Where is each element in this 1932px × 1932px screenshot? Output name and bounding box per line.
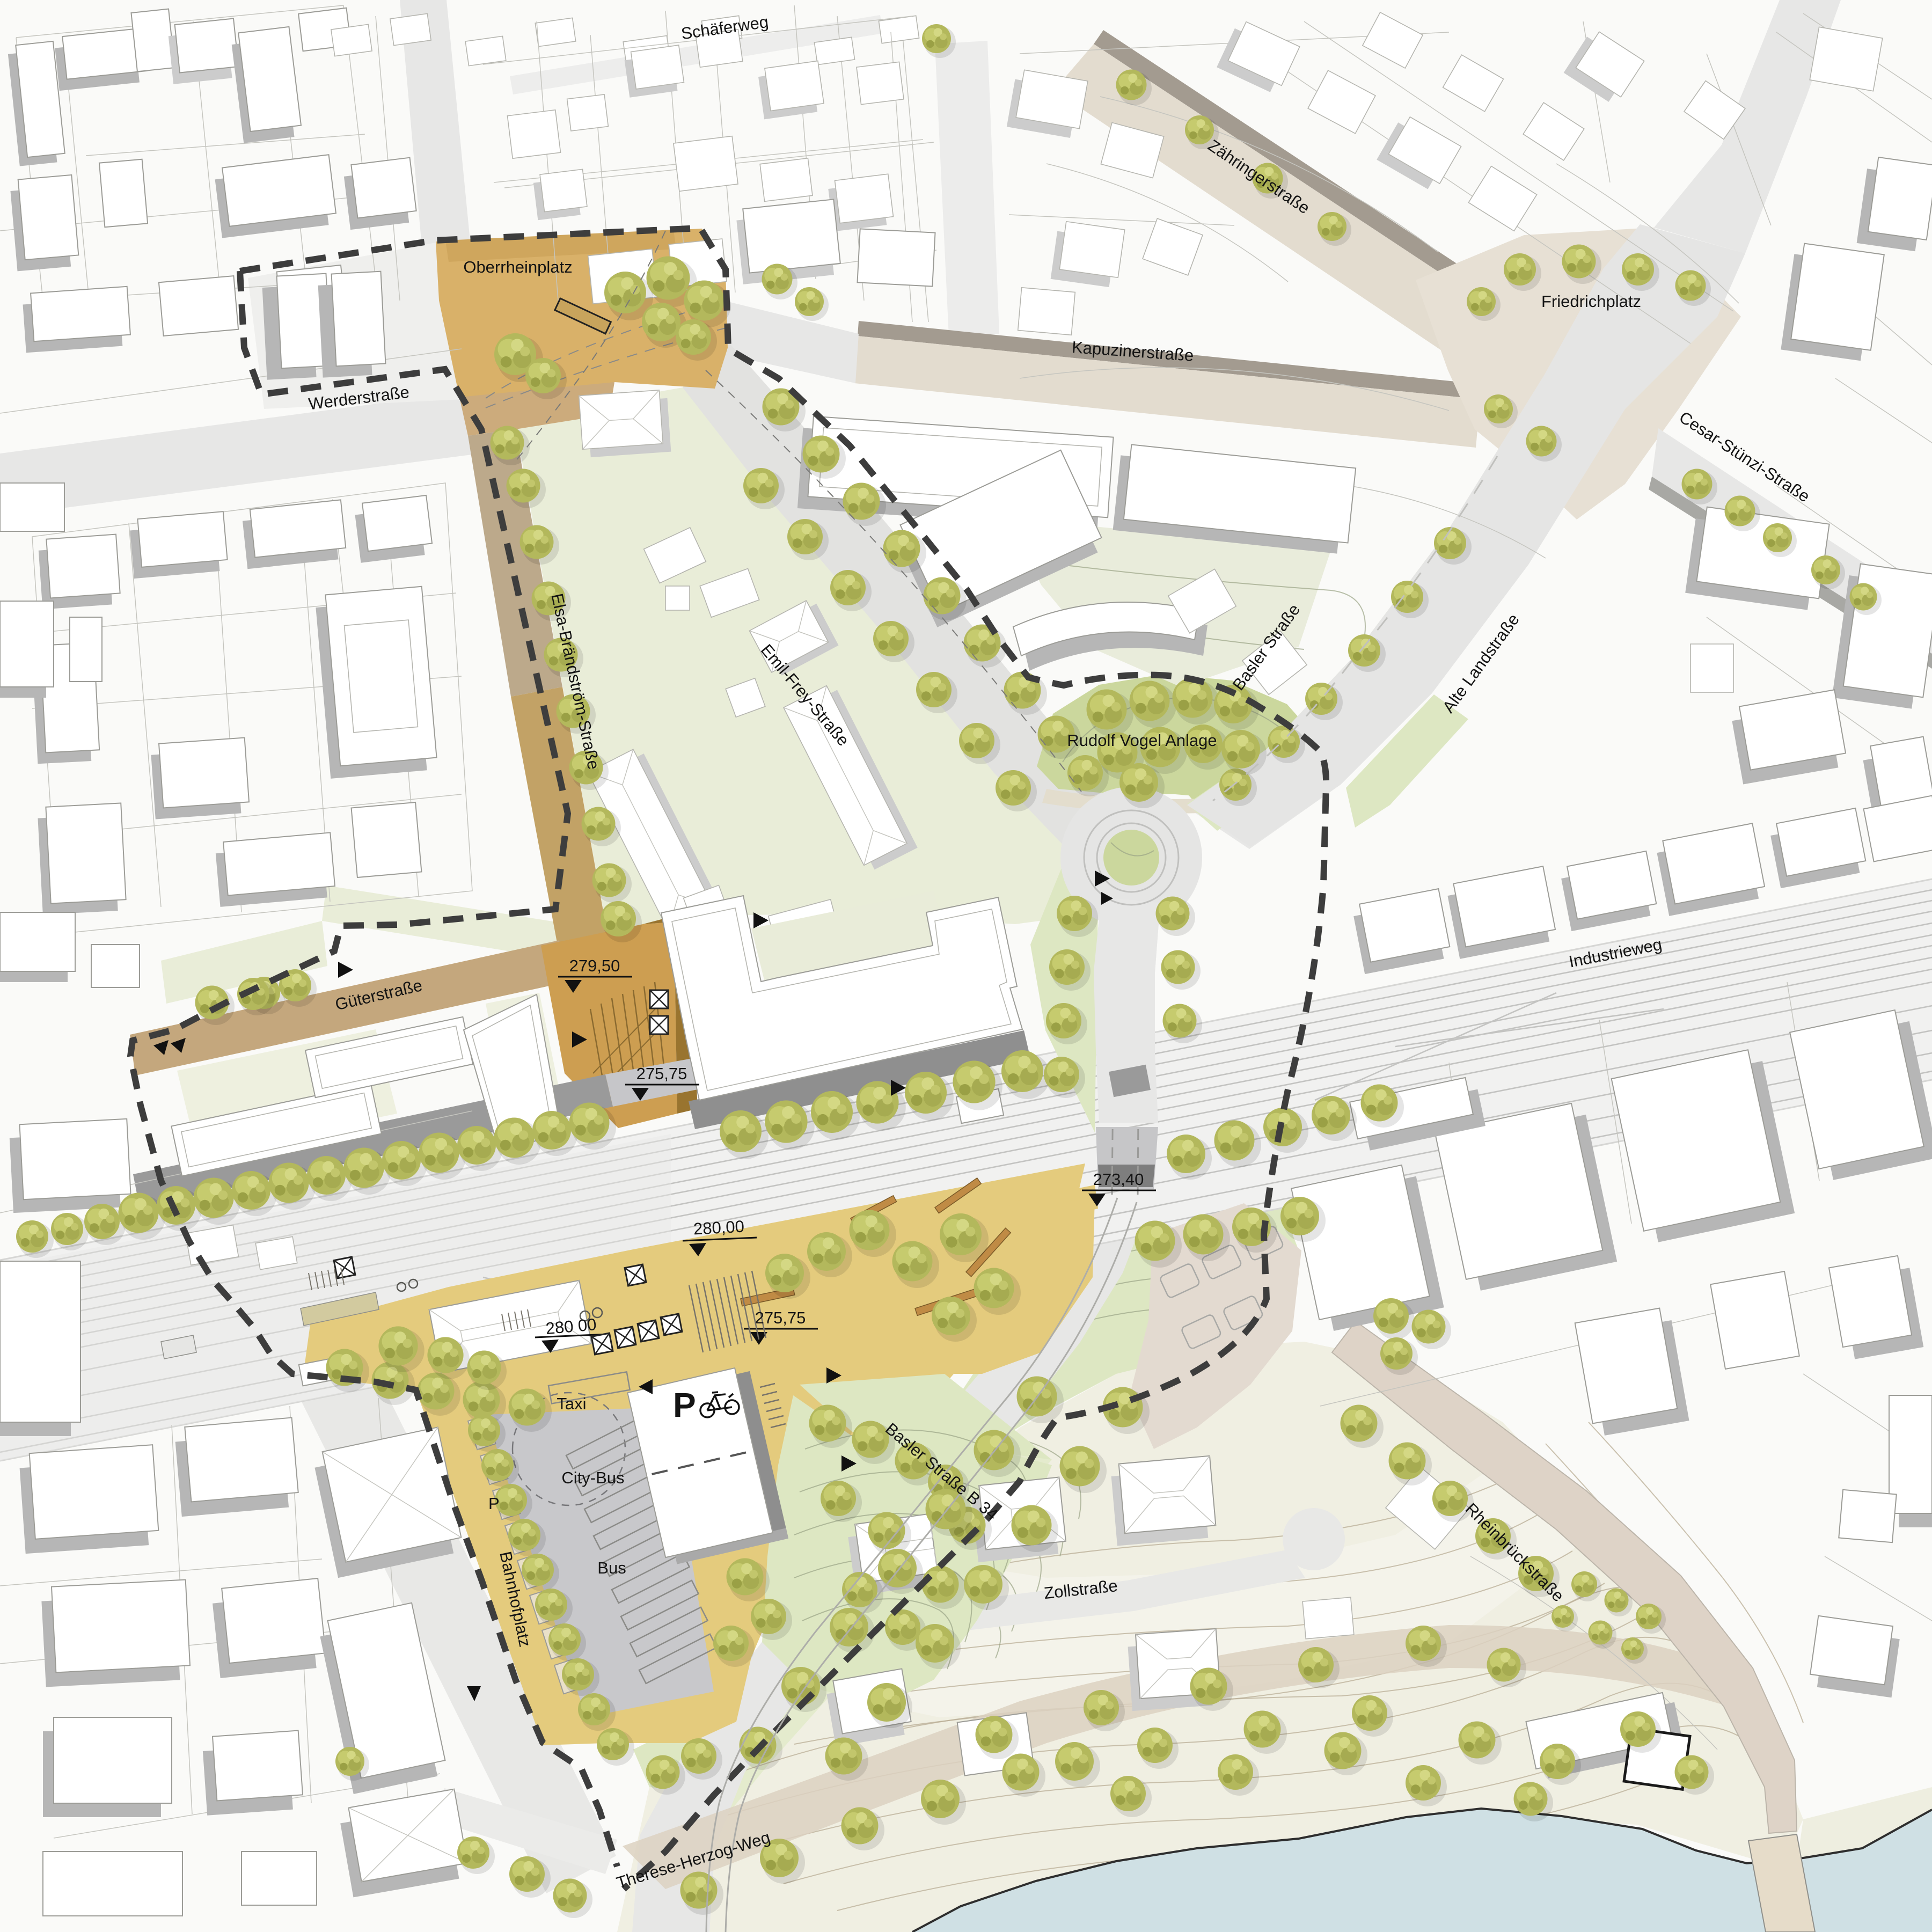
svg-text:P: P	[673, 1386, 696, 1424]
svg-text:279,50: 279,50	[569, 956, 620, 975]
svg-text:Bus: Bus	[597, 1558, 626, 1577]
svg-text:Taxi: Taxi	[557, 1394, 586, 1413]
svg-text:Rudolf Vogel Anlage: Rudolf Vogel Anlage	[1067, 731, 1217, 750]
svg-text:Friedrichplatz: Friedrichplatz	[1541, 292, 1641, 311]
svg-text:275,75: 275,75	[636, 1064, 687, 1083]
svg-text:273,40: 273,40	[1093, 1170, 1144, 1189]
svg-text:City-Bus: City-Bus	[561, 1468, 624, 1487]
svg-text:280,00: 280,00	[693, 1217, 745, 1239]
svg-text:Oberrheinplatz: Oberrheinplatz	[463, 258, 572, 276]
svg-text:P: P	[488, 1494, 500, 1513]
svg-text:275,75: 275,75	[755, 1308, 806, 1327]
